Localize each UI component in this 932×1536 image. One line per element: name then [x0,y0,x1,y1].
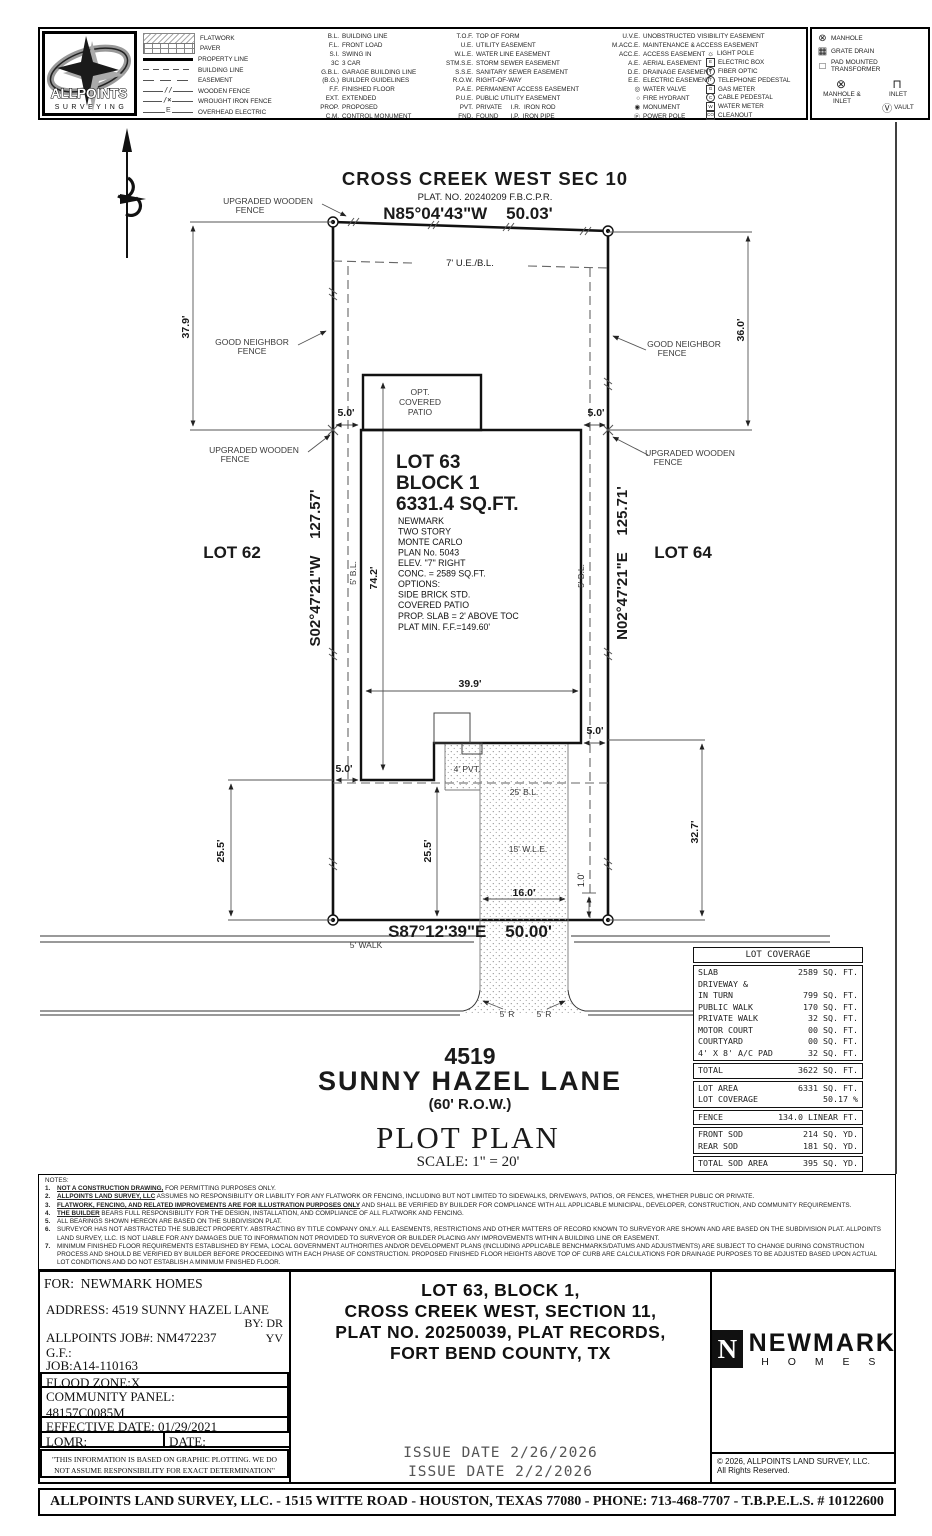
coverage-row: COURTYARD 00 SQ. FT. [698,1036,858,1048]
newmark-n-icon: N [712,1330,743,1368]
good-neighbor-label-lb: FENCE [238,346,267,356]
legend-abbrev-row: F.L. FRONT LOAD [313,41,435,50]
legend-sample-row: OVERHEAD ELECTRIC [143,107,311,118]
note-bold: THE BUILDER [57,1210,100,1217]
legend-term: FRONT LOAD [342,42,382,49]
coverage-total-row: TOTAL3622 SQ. FT. [698,1065,858,1077]
coverage-label: REAR SOD [698,1141,738,1153]
dim-16-0: 16.0' [513,887,536,899]
patio-label-2: COVERED [399,397,441,407]
note-tail: AND SHALL BE VERIFIED BY BUILDER FOR COM… [360,1202,851,1209]
coverage-value: 181 SQ. YD. [803,1141,858,1153]
dim-37-9: 37.9' [180,316,192,339]
legend-term: TOP OF FORM [476,33,520,40]
house-info-line: PROP. SLAB = 2' ABOVE TOC [398,611,519,621]
dim-1-0: 1.0' [576,873,586,888]
community-panel-row: COMMUNITY PANEL: 48157C0085M [40,1386,289,1418]
note-tail: BEARS FULL RESPONSIBILITY FOR THE DESIGN… [100,1210,464,1217]
copyright-box: © 2026, ALLPOINTS LAND SURVEY, LLC. All … [712,1452,896,1484]
legend-abbrev-col1: B.L. BUILDING LINE F.L. FRONT LOAD S.I. … [313,32,435,121]
bearing-bottom: S87°12'39"E 50.00' [388,922,552,941]
legend-abbr: U.V.E. [592,33,640,40]
legend-sample-swatch [143,66,193,75]
graphic-plotting-disclaimer: "THIS INFORMATION IS BASED ON GRAPHIC PL… [40,1449,289,1478]
legal-line2: CROSS CREEK WEST, SECTION 11, [291,1301,710,1322]
disclaimer-line1: "THIS INFORMATION IS BASED ON GRAPHIC PL… [46,1454,283,1465]
coverage-label: FRONT SOD [698,1129,743,1141]
note-tail: MINIMUM FINISHED FLOOR REQUIREMENTS ESTA… [57,1243,877,1266]
dim-74-2: 74.2' [368,567,380,590]
legend-term: CONTROL MONUMENT [342,113,411,120]
title-block: FOR: NEWMARK HOMES ADDRESS: 4519 SUNNY H… [38,1270,896,1484]
legend-abbrev-row: S.S.E. SANITARY SEWER EASEMENT [433,68,595,77]
plot-plan-title: PLOT PLAN [376,1120,560,1155]
legend-term: LIGHT POLE [717,50,754,57]
legend-symbol-row: ☼ LIGHT POLE [706,49,810,58]
legend-term: POWER POLE [643,113,685,120]
coverage-value: 134.0 LINEAR FT. [778,1112,858,1124]
legend-term: GARAGE BUILDING LINE [342,69,416,76]
legend-sample-row: WOODEN FENCE [143,86,311,97]
note-number: 5. [45,1218,57,1226]
dim-36-0: 36.0' [735,319,747,342]
issue-date-2: ISSUE DATE 2/2/2026 [291,1463,710,1482]
coverage-value: 6331 SQ. FT. [798,1083,858,1095]
note-bold: ALLPOINTS LAND SURVEY, LLC [57,1193,155,1200]
legend-term: RIGHT-OF-WAY [476,77,522,84]
copyright-line1: © 2026, ALLPOINTS LAND SURVEY, LLC. [717,1457,891,1466]
front-sod-row: FRONT SOD214 SQ. YD. [698,1129,858,1141]
legal-line3: PLAT NO. 20250039, PLAT RECORDS, [291,1322,710,1343]
legend-term: EXTENDED [342,95,376,102]
dim-32-7: 32.7' [689,821,701,844]
house-info-line: CONC. = 2589 SQ.FT. [398,569,486,579]
lot-coverage-table: LOT COVERAGE SLAB 2589 SQ. FT. DRIVEWAY … [693,945,863,1172]
house-info-line: COVERED PATIO [398,600,469,610]
patio-label-3: PATIO [408,407,433,417]
legend-term: PUBLIC UTILITY EASEMENT [476,95,560,102]
legend-abbrev-row: PVT. PRIVATE I.R. IRON ROD [433,103,595,112]
coverage-row: SLAB 2589 SQ. FT. [698,967,858,979]
legend-abbrev-col2: T.O.F. TOP OF FORM U.E. UTILITY EASEMENT… [433,32,595,121]
coverage-label: PUBLIC WALK [698,1002,753,1014]
legend-sample-swatch [143,76,193,85]
legend-term: ACCESS EASEMENT [643,51,705,58]
coverage-value: 214 SQ. YD. [803,1129,858,1141]
coverage-title: LOT COVERAGE [693,947,863,963]
legend-term: PRIVATE I.R. IRON ROD [476,104,556,111]
coverage-label: DRIVEWAY & [698,979,748,991]
disclaimer-line2: NOT ASSUME RESPONSIBILITY FOR EXACT DETE… [46,1465,283,1476]
legend-term: UNOBSTRUCTED VISIBILITY EASEMENT [643,33,765,40]
legend-abbr: STM.S.E. [433,60,473,67]
legend-term: MONUMENT [643,104,680,111]
radius-5-right: 5' R [537,1009,552,1019]
legend-abbr: ◎ [592,86,640,93]
legend-abbr: W.L.E. [433,51,473,58]
note-text: SURVEYOR HAS NOT ABSTRACTED THE SUBJECT … [57,1226,889,1242]
legend-sample-label: FLATWORK [200,35,235,42]
note-text: THE BUILDER BEARS FULL RESPONSIBILITY FO… [57,1210,464,1218]
street-name: SUNNY HAZEL LANE [318,1066,622,1096]
coverage-value: 799 SQ. FT. [803,990,858,1002]
legend-abbrev-row: STM.S.E. STORM SEWER EASEMENT [433,59,595,68]
plot-plan-scale: SCALE: 1" = 20' [417,1154,520,1170]
legend-term: WATER METER [718,103,764,110]
coverage-label: FENCE [698,1112,723,1124]
legend-abbr: U.E. [433,42,473,49]
coverage-row: PRIVATE WALK 32 SQ. FT. [698,1013,858,1025]
bl-5-left: 5' B.L. [348,561,358,585]
legend-abbrev-row: W.L.E. WATER LINE EASEMENT [433,50,595,59]
legend-abbr: ◉ [592,104,640,111]
bearing-left: S02°47'21"W 127.57' [307,489,324,646]
legend-sample-swatch [143,87,193,96]
block-1-label: BLOCK 1 [396,473,480,494]
legend-sample-swatch [143,43,195,54]
legend-symbols-col: ☼ LIGHT POLE E ELECTRIC BOX F FIBER OPTI… [706,49,810,120]
note-item: 1. NOT A CONSTRUCTION DRAWING, FOR PERMI… [45,1185,889,1193]
legend-term: CABLE PEDESTAL [718,94,773,101]
coverage-label: COURTYARD [698,1036,743,1048]
legend-term: SWING IN [342,51,371,58]
legend-term: UTILITY EASEMENT [476,42,536,49]
fence-row: FENCE134.0 LINEAR FT. [698,1112,858,1124]
driveway-flatwork [445,743,585,1015]
legend-symbol-icon: T [706,76,715,85]
legend-line-samples: FLATWORK PAVER PROPERTY LINE BUILDING LI… [143,33,311,118]
allpoints-logo: ALLPOINTS SURVEYING [42,31,137,116]
legend-symbol-icon: CO [706,111,715,120]
newmark-logo: N NEWMARK H O M E S [712,1330,896,1368]
legend-term: PAD MOUNTED TRANSFORMER [831,59,901,73]
legend-sample-swatch [143,33,195,44]
legend-term: SANITARY SEWER EASEMENT [476,69,568,76]
legend-term: CLEANOUT [718,112,752,119]
legend-sample-row: WROUGHT IRON FENCE [143,97,311,108]
walk-5-label: 5' WALK [350,940,383,950]
note-item: 4. THE BUILDER BEARS FULL RESPONSIBILITY… [45,1210,889,1218]
label-leaders [298,204,648,1009]
house-info-line: TWO STORY [398,527,451,537]
by-line: BY: DR [244,1316,283,1331]
coverage-row: DRIVEWAY & [698,979,858,991]
manhole-icon: ⊗ [816,33,829,44]
bearing-right: N02°47'21"E 125.71' [614,486,631,640]
legend-term: FIBER OPTIC [718,68,758,75]
newmark-homes: H O M E S [749,1356,896,1368]
legend-term: MANHOLE & INLET [816,91,868,105]
plat-number: PLAT. NO. 20240209 F.B.C.P.R. [418,192,553,203]
issue-date-1: ISSUE DATE 2/26/2026 [291,1444,710,1463]
legend-term: PERMANENT ACCESS EASEMENT [476,86,579,93]
subdivision-title: CROSS CREEK WEST SEC 10 [342,168,628,189]
note-bold: FLATWORK, FENCING, AND RELATED IMPROVEME… [57,1202,360,1209]
coverage-value: 3622 SQ. FT. [798,1065,858,1077]
legend-term: VAULT [894,104,914,111]
legal-line1: LOT 63, BLOCK 1, [291,1280,710,1301]
legend-term: ELECTRIC BOX [718,59,764,66]
legend-symbol-row: CO CLEANOUT [706,111,810,120]
legend-sample-swatch [143,55,193,64]
builder-logo-panel: N NEWMARK H O M E S © 2026, ALLPOINTS LA… [712,1272,896,1482]
coverage-row: 4' X 8' A/C PAD 32 SQ. FT. [698,1048,858,1060]
legend-abbr: R.O.W. [433,77,473,84]
legend-abbr: P.A.E. [433,86,473,93]
note-number: 6. [45,1226,57,1242]
coverage-value: 32 SQ. FT. [808,1048,858,1060]
note-tail: FOR PERMITTING PURPOSES ONLY. [163,1185,276,1192]
patio-label-1: OPT. [411,387,430,397]
legend-symbol-icon: ☼ [706,49,715,58]
legend-term: BUILDING LINE [342,33,388,40]
coverage-label: LOT COVERAGE [698,1094,758,1106]
upgraded-fence-label-2b: FENCE [221,454,250,464]
legend-sample-label: PAVER [200,45,220,52]
note-bold: NOT A CONSTRUCTION DRAWING, [57,1185,163,1192]
rear-sod-row: REAR SOD181 SQ. YD. [698,1141,858,1153]
legend-abbr: EXT. [313,95,339,102]
address-line: ADDRESS: 4519 SUNNY HAZEL LANE [46,1302,269,1318]
coverage-row: IN TURN 799 SQ. FT. [698,990,858,1002]
dim-5-0-mr: 5.0' [586,725,603,737]
note-item: 2. ALLPOINTS LAND SURVEY, LLC ASSUMES NO… [45,1193,889,1201]
note-item: 7. MINIMUM FINISHED FLOOR REQUIREMENTS E… [45,1243,889,1268]
coverage-row: MOTOR COURT 00 SQ. FT. [698,1025,858,1037]
legend-abbrev-row: PROP. PROPOSED [313,103,435,112]
note-number: 1. [45,1185,57,1193]
note-text: ALLPOINTS LAND SURVEY, LLC ASSUMES NO RE… [57,1193,754,1201]
legend-symbol-icon: E [706,58,715,67]
legend-term: BUILDER GUIDELINES [342,77,409,84]
legend-term: ELECTRIC EASEMENT [643,77,711,84]
legend-abbrev-row: P.A.E. PERMANENT ACCESS EASEMENT [433,85,595,94]
legend-abbr: B.L. [313,33,339,40]
legend-sample-swatch [143,97,193,106]
allpoints-logo-graphic: ALLPOINTS SURVEYING [45,34,134,113]
legend-abbr: (B.G.) [313,77,339,84]
note-text: ALL BEARINGS SHOWN HEREON ARE BASED ON T… [57,1218,282,1226]
legal-description-panel: LOT 63, BLOCK 1, CROSS CREEK WEST, SECTI… [291,1272,712,1482]
dim-25-5-inner: 25.5' [422,840,434,863]
legend-abbrev-row: (B.G.) BUILDER GUIDELINES [313,76,435,85]
upgraded-fence-label-3b: FENCE [654,457,683,467]
house-info-line: PLAT MIN. F.F.=149.60' [398,622,490,632]
coverage-value: 2589 SQ. FT. [798,967,858,979]
legend-abbrev-row: S.I. SWING IN [313,50,435,59]
legend-symbol-icon: W [706,102,715,111]
coverage-value: 32 SQ. FT. [808,1013,858,1025]
house-info-line: MONTE CARLO [398,537,463,547]
note-number: 3. [45,1202,57,1210]
note-item: 6. SURVEYOR HAS NOT ABSTRACTED THE SUBJE… [45,1226,889,1242]
legend-term: AERIAL EASEMENT [643,60,702,67]
house-info-line: ELEV. "7" RIGHT [398,558,466,568]
legend-abbrev-row: B.L. BUILDING LINE [313,32,435,41]
coverage-label: TOTAL SOD AREA [698,1158,768,1170]
legend-symbol-row: F FIBER OPTIC [706,67,810,76]
note-number: 7. [45,1243,57,1268]
notes-section: NOTES: 1. NOT A CONSTRUCTION DRAWING, FO… [38,1174,896,1270]
legend-sample-label: WROUGHT IRON FENCE [198,98,272,105]
legend-abbr: FND. [433,113,473,120]
legend-abbr: PVT. [433,104,473,111]
bearing-top: N85°04'43"W 50.03' [383,204,552,223]
legend-symbol-row: W WATER METER [706,102,810,111]
legend-abbr: 3C [313,60,339,67]
logo-wordmark: ALLPOINTS [51,86,128,101]
legend-symbol-icon: G [706,85,715,94]
legend-abbrev-row: G.B.L. GARAGE BUILDING LINE [313,68,435,77]
lot-coverage-row: LOT COVERAGE50.17 % [698,1094,858,1106]
ue-bl-label: 7' U.E./B.L. [446,258,494,269]
surveyor-footer: ALLPOINTS LAND SURVEY, LLC. - 1515 WITTE… [38,1488,896,1516]
legend-sample-label: PROPERTY LINE [198,56,248,63]
coverage-items: SLAB 2589 SQ. FT. DRIVEWAY & IN TURN 799… [693,965,863,1061]
by2-line: YV [266,1331,283,1346]
newmark-name: NEWMARK [749,1331,896,1356]
legend-term: GRATE DRAIN [831,48,874,55]
house-info-line: PLAN No. 5043 [398,548,459,558]
grate-drain-icon: ▦ [816,46,829,57]
house-info-line: SIDE BRICK STD. [398,590,470,600]
job-number-line: ALLPOINTS JOB#: NM472237 [46,1330,216,1346]
legend-abbrev-row: P.U.E. PUBLIC UTILITY EASEMENT [433,94,595,103]
legend-term: 3 CAR [342,60,361,67]
legend-term: MANHOLE [831,35,863,42]
coverage-label: MOTOR COURT [698,1025,753,1037]
row-width: (60' R.O.W.) [429,1096,512,1113]
lot-62-label: LOT 62 [203,543,261,562]
notes-title: NOTES: [45,1177,889,1185]
legend-abbrev-row: 3C 3 CAR [313,59,435,68]
legend-header: ALLPOINTS SURVEYING FLATWORK PAVER PROPE… [38,27,808,120]
total-sod-row: TOTAL SOD AREA395 SQ. YD. [698,1158,858,1170]
legend-abbr: F.L. [313,42,339,49]
legend-abbr: PROP. [313,104,339,111]
legend-sample-row: FLATWORK [143,33,311,44]
pvt-walk-label: 4' PVT. [454,764,481,774]
legend-sample-label: EASEMENT [198,77,233,84]
house-info-line: OPTIONS: [398,579,440,589]
bl-5-right: 5' B.L. [576,564,586,588]
coverage-label: SLAB [698,967,718,979]
legend-term: DRAINAGE EASEMENT [643,69,712,76]
legend-term: WATER LINE EASEMENT [476,51,550,58]
legend-abbr: Ⓟ [592,112,640,121]
note-item: 5. ALL BEARINGS SHOWN HEREON ARE BASED O… [45,1218,889,1226]
vault-icon: Ⓥ [882,100,892,115]
upgraded-fence-label-1b: FENCE [236,205,265,215]
legend-symbol-icon: C [706,93,715,102]
legend-abbr: T.O.F. [433,33,473,40]
legend-symbol-icon: F [706,67,715,76]
legend-term: TELEPHONE PEDESTAL [718,77,790,84]
dim-5-0-tl: 5.0' [337,407,354,419]
manhole-inlet-icon: ⊗ [835,77,848,91]
legend-abbr: G.B.L. [313,69,339,76]
dim-5-0-tr: 5.0' [587,407,604,419]
legend-abbr: D.E. [592,69,640,76]
coverage-value: 395 SQ. YD. [803,1158,858,1170]
dim-5-0-ml: 5.0' [335,763,352,775]
legend-abbrev-row: F.F. FINISHED FLOOR [313,85,435,94]
coverage-value: 00 SQ. FT. [808,1025,858,1037]
coverage-label: TOTAL [698,1065,723,1077]
coverage-label: IN TURN [698,990,733,1002]
legend-abbr: ○ [592,95,640,102]
project-info-panel: FOR: NEWMARK HOMES ADDRESS: 4519 SUNNY H… [40,1272,291,1482]
note-tail: ALL BEARINGS SHOWN HEREON ARE BASED ON T… [57,1218,282,1225]
coverage-row: PUBLIC WALK 170 SQ. FT. [698,1002,858,1014]
lot-64-label: LOT 64 [654,543,712,562]
legend-term: STORM SEWER EASEMENT [476,60,560,67]
legend-abbr: A.E. [592,60,640,67]
dim-39-9: 39.9' [459,678,482,690]
note-tail: ASSUMES NO RESPONSIBILITY OR LIABILITY F… [155,1193,754,1200]
coverage-value: 50.17 % [823,1094,858,1106]
legend-sample-label: BUILDING LINE [198,67,244,74]
note-text: MINIMUM FINISHED FLOOR REQUIREMENTS ESTA… [57,1243,889,1268]
legal-line4: FORT BEND COUNTY, TX [291,1343,710,1364]
note-number: 2. [45,1193,57,1201]
wle-15-label: 15' W.L.E. [509,844,547,854]
legend-abbrev-row: FND. FOUND I.P. IRON PIPE [433,112,595,121]
legend-abbr: S.I. [313,51,339,58]
legend-term: FIRE HYDRANT [643,95,690,102]
note-tail: SURVEYOR HAS NOT ABSTRACTED THE SUBJECT … [57,1226,881,1241]
note-text: FLATWORK, FENCING, AND RELATED IMPROVEME… [57,1202,851,1210]
lot-63-label: LOT 63 [396,452,460,473]
legend-abbr: E.E. [592,77,640,84]
legend-symbol-row: G GAS METER [706,85,810,94]
legend-sample-row: PROPERTY LINE [143,54,311,65]
legend-abbr: S.S.E. [433,69,473,76]
note-text: NOT A CONSTRUCTION DRAWING, FOR PERMITTI… [57,1185,276,1193]
coverage-label: PRIVATE WALK [698,1013,758,1025]
radius-5-left: 5' R [500,1009,515,1019]
legend-abbrev-row: T.O.F. TOP OF FORM [433,32,595,41]
good-neighbor-label-rb: FENCE [658,348,687,358]
legend-symbol-row: E ELECTRIC BOX [706,58,810,67]
legend-term: WATER VALVE [643,86,686,93]
legend-abbr: ACC.E. [592,51,640,58]
legend-sample-label: OVERHEAD ELECTRIC [198,109,266,116]
legend-abbrev-row: U.V.E. UNOBSTRUCTED VISIBILITY EASEMENT [592,32,807,41]
legend-symbol-row: T TELEPHONE PEDESTAL [706,76,810,85]
legend-sample-label: WOODEN FENCE [198,88,250,95]
legend-abbrev-row: C.M. CONTROL MONUMENT [313,112,435,121]
notes-list: 1. NOT A CONSTRUCTION DRAWING, FOR PERMI… [45,1185,889,1267]
legend-sample-row: PAVER [143,44,311,55]
copyright-line2: All Rights Reserved. [717,1466,891,1475]
legend-term: FINISHED FLOOR [342,86,395,93]
legend-abbr: M.ACC.E. [592,42,640,49]
coverage-value: 00 SQ. FT. [808,1036,858,1048]
dim-25-5-left: 25.5' [215,840,227,863]
legend-sample-swatch [143,108,193,117]
lot-area-label: 6331.4 SQ.FT. [396,494,519,515]
legend-term: MAINTENANCE & ACCESS EASEMENT [643,42,758,49]
note-item: 3. FLATWORK, FENCING, AND RELATED IMPROV… [45,1202,889,1210]
legend-abbrev-row: U.E. UTILITY EASEMENT [433,41,595,50]
pad-transformer-icon: □ [816,61,829,72]
legend-term: GAS METER [718,86,755,93]
legend-term: INLET [889,91,907,98]
logo-subtitle: SURVEYING [55,104,128,111]
date-cell: DATE: [163,1431,291,1448]
client-line: FOR: NEWMARK HOMES [44,1276,203,1292]
